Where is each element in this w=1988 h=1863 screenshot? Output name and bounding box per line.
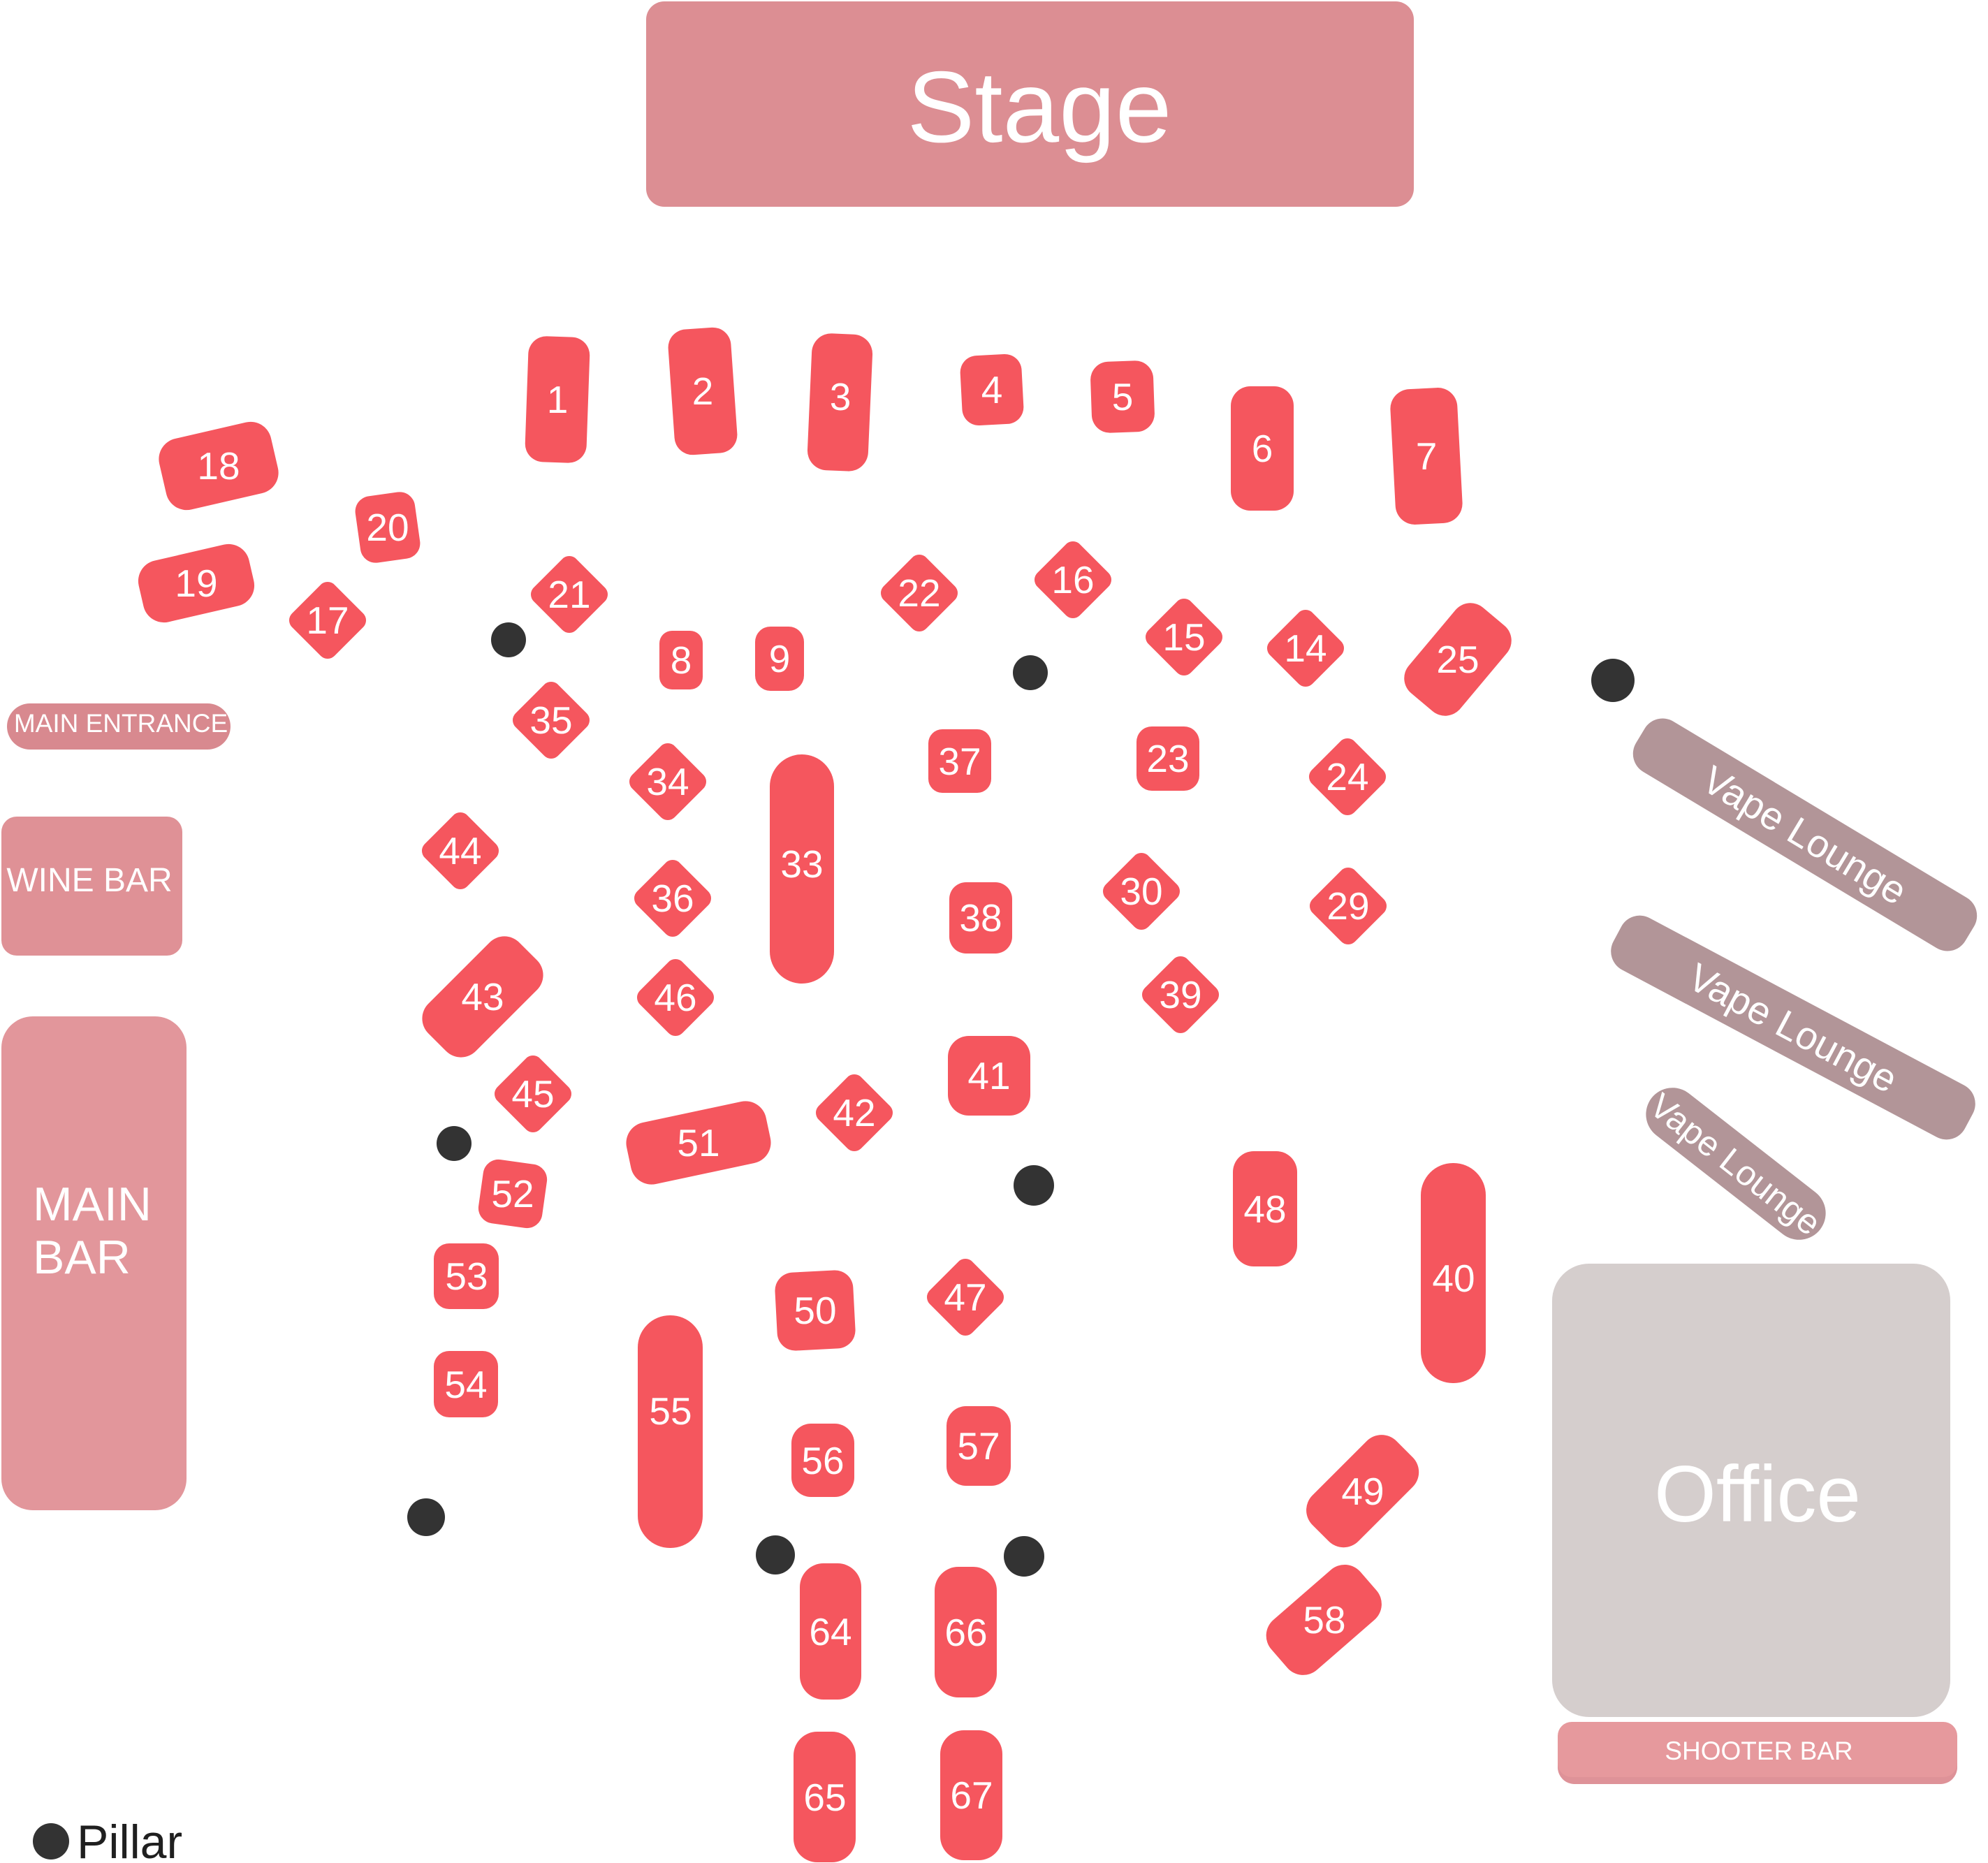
svg-text:64: 64 [809,1610,852,1653]
svg-text:33: 33 [780,842,823,886]
svg-text:6: 6 [1252,427,1273,470]
svg-text:48: 48 [1243,1188,1286,1231]
svg-text:56: 56 [801,1439,844,1482]
svg-text:8: 8 [671,638,692,682]
svg-text:Office: Office [1654,1450,1861,1539]
svg-text:15: 15 [1162,615,1205,659]
svg-text:BAR: BAR [33,1231,131,1284]
svg-text:Vape Lounge: Vape Lounge [1695,757,1915,913]
svg-text:16: 16 [1051,558,1094,601]
svg-text:38: 38 [959,896,1002,940]
svg-text:Vape Lounge: Vape Lounge [1642,1086,1828,1243]
svg-text:14: 14 [1284,627,1326,670]
svg-text:18: 18 [197,444,240,488]
svg-text:45: 45 [511,1072,554,1116]
svg-text:55: 55 [649,1389,692,1433]
svg-text:2: 2 [692,370,714,413]
svg-text:41: 41 [967,1054,1010,1097]
svg-text:51: 51 [677,1121,719,1164]
svg-text:1: 1 [547,378,569,421]
svg-text:Stage: Stage [907,50,1172,163]
svg-text:24: 24 [1326,755,1368,798]
svg-text:57: 57 [957,1424,1000,1468]
svg-text:SHOOTER BAR: SHOOTER BAR [1665,1737,1852,1765]
svg-text:42: 42 [833,1091,875,1134]
svg-text:20: 20 [366,506,409,549]
svg-text:39: 39 [1159,973,1201,1016]
svg-text:67: 67 [950,1774,993,1817]
svg-text:36: 36 [651,877,694,920]
svg-text:40: 40 [1432,1257,1475,1300]
svg-text:52: 52 [491,1172,534,1215]
svg-text:25: 25 [1436,638,1479,681]
svg-text:34: 34 [646,760,689,803]
svg-text:MAIN ENTRANCE: MAIN ENTRANCE [14,709,228,738]
svg-text:35: 35 [529,699,572,742]
svg-text:43: 43 [461,975,504,1018]
svg-text:29: 29 [1326,884,1369,928]
svg-text:50: 50 [794,1289,836,1332]
svg-text:30: 30 [1120,870,1162,913]
svg-text:MAIN: MAIN [33,1178,152,1231]
svg-text:58: 58 [1303,1598,1345,1642]
svg-text:54: 54 [444,1363,487,1406]
svg-text:Pillar: Pillar [77,1815,182,1863]
svg-text:17: 17 [306,599,349,642]
svg-text:Vape Lounge: Vape Lounge [1681,954,1905,1101]
svg-text:3: 3 [830,375,852,418]
svg-text:66: 66 [944,1611,987,1654]
svg-text:22: 22 [898,571,940,615]
svg-text:WINE BAR: WINE BAR [6,862,172,899]
svg-text:21: 21 [548,573,590,616]
svg-text:49: 49 [1341,1470,1384,1513]
svg-text:23: 23 [1146,737,1189,780]
svg-text:5: 5 [1112,375,1134,418]
svg-text:7: 7 [1416,434,1438,478]
svg-text:65: 65 [803,1776,846,1819]
svg-text:46: 46 [654,976,696,1019]
svg-text:53: 53 [445,1255,488,1298]
svg-text:19: 19 [175,562,217,605]
svg-text:47: 47 [944,1276,986,1319]
svg-text:9: 9 [769,637,791,680]
svg-text:37: 37 [938,740,981,783]
svg-text:44: 44 [439,829,481,872]
svg-text:4: 4 [981,368,1003,411]
